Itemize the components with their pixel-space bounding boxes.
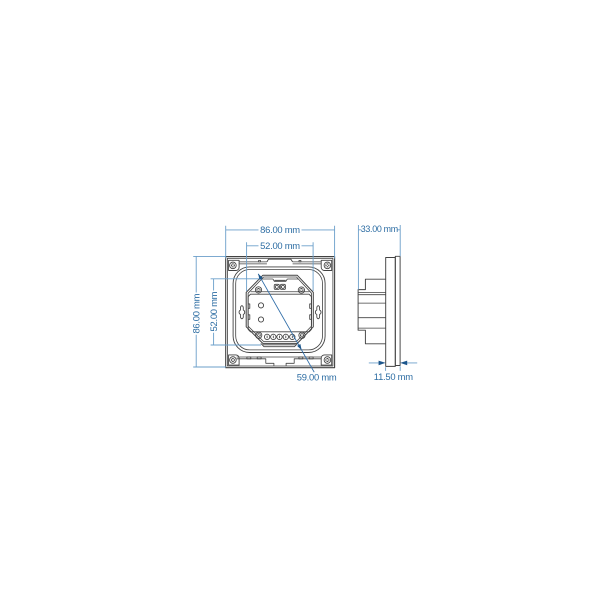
svg-text:86.00 mm: 86.00 mm (190, 293, 201, 333)
svg-text:59.00 mm: 59.00 mm (297, 371, 337, 382)
svg-text:11.50 mm: 11.50 mm (374, 371, 413, 382)
svg-text:33.00 mm: 33.00 mm (361, 224, 398, 234)
svg-text:52.00 mm: 52.00 mm (208, 291, 219, 331)
svg-text:52.00 mm: 52.00 mm (260, 240, 300, 251)
svg-text:86.00 mm: 86.00 mm (260, 224, 300, 235)
